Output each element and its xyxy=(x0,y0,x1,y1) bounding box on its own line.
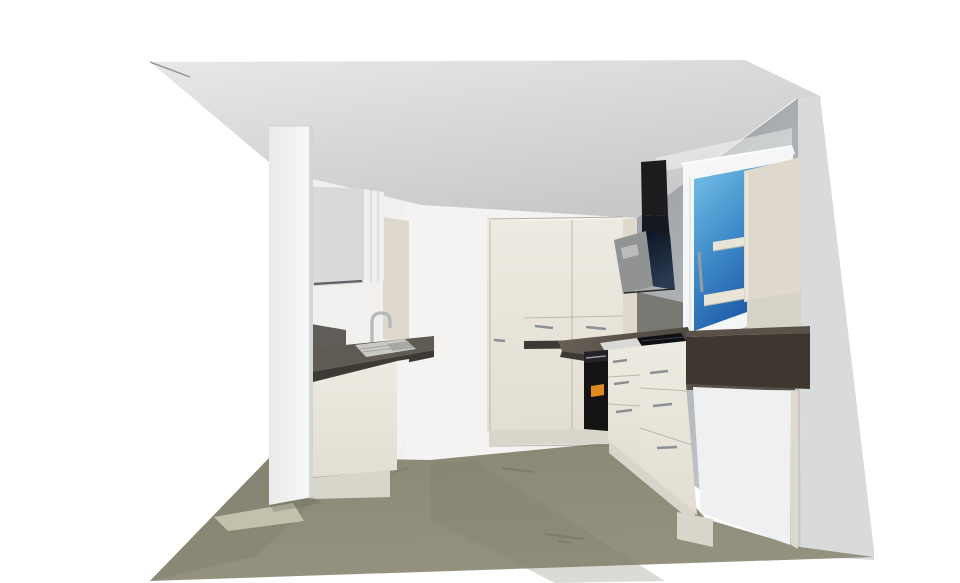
oven-display xyxy=(591,384,604,397)
partition-face xyxy=(269,126,313,505)
tall-pantry-cabinet xyxy=(487,219,524,432)
wall-cabinet-side xyxy=(364,189,384,283)
end-panel-edge xyxy=(791,391,798,549)
plinth xyxy=(489,428,621,445)
cabinet-handle xyxy=(494,340,505,341)
3d-viewport[interactable] xyxy=(0,0,960,583)
counter-end-panel xyxy=(686,333,810,389)
tall-end-panel xyxy=(383,217,409,341)
hood-chimney-upper xyxy=(641,160,668,216)
shelf-side-panel xyxy=(744,157,801,302)
wall-cabinet-door xyxy=(305,186,364,287)
partition-edge xyxy=(309,126,313,499)
kitchen-render-canvas xyxy=(0,0,960,583)
drawer-handle xyxy=(657,447,677,448)
